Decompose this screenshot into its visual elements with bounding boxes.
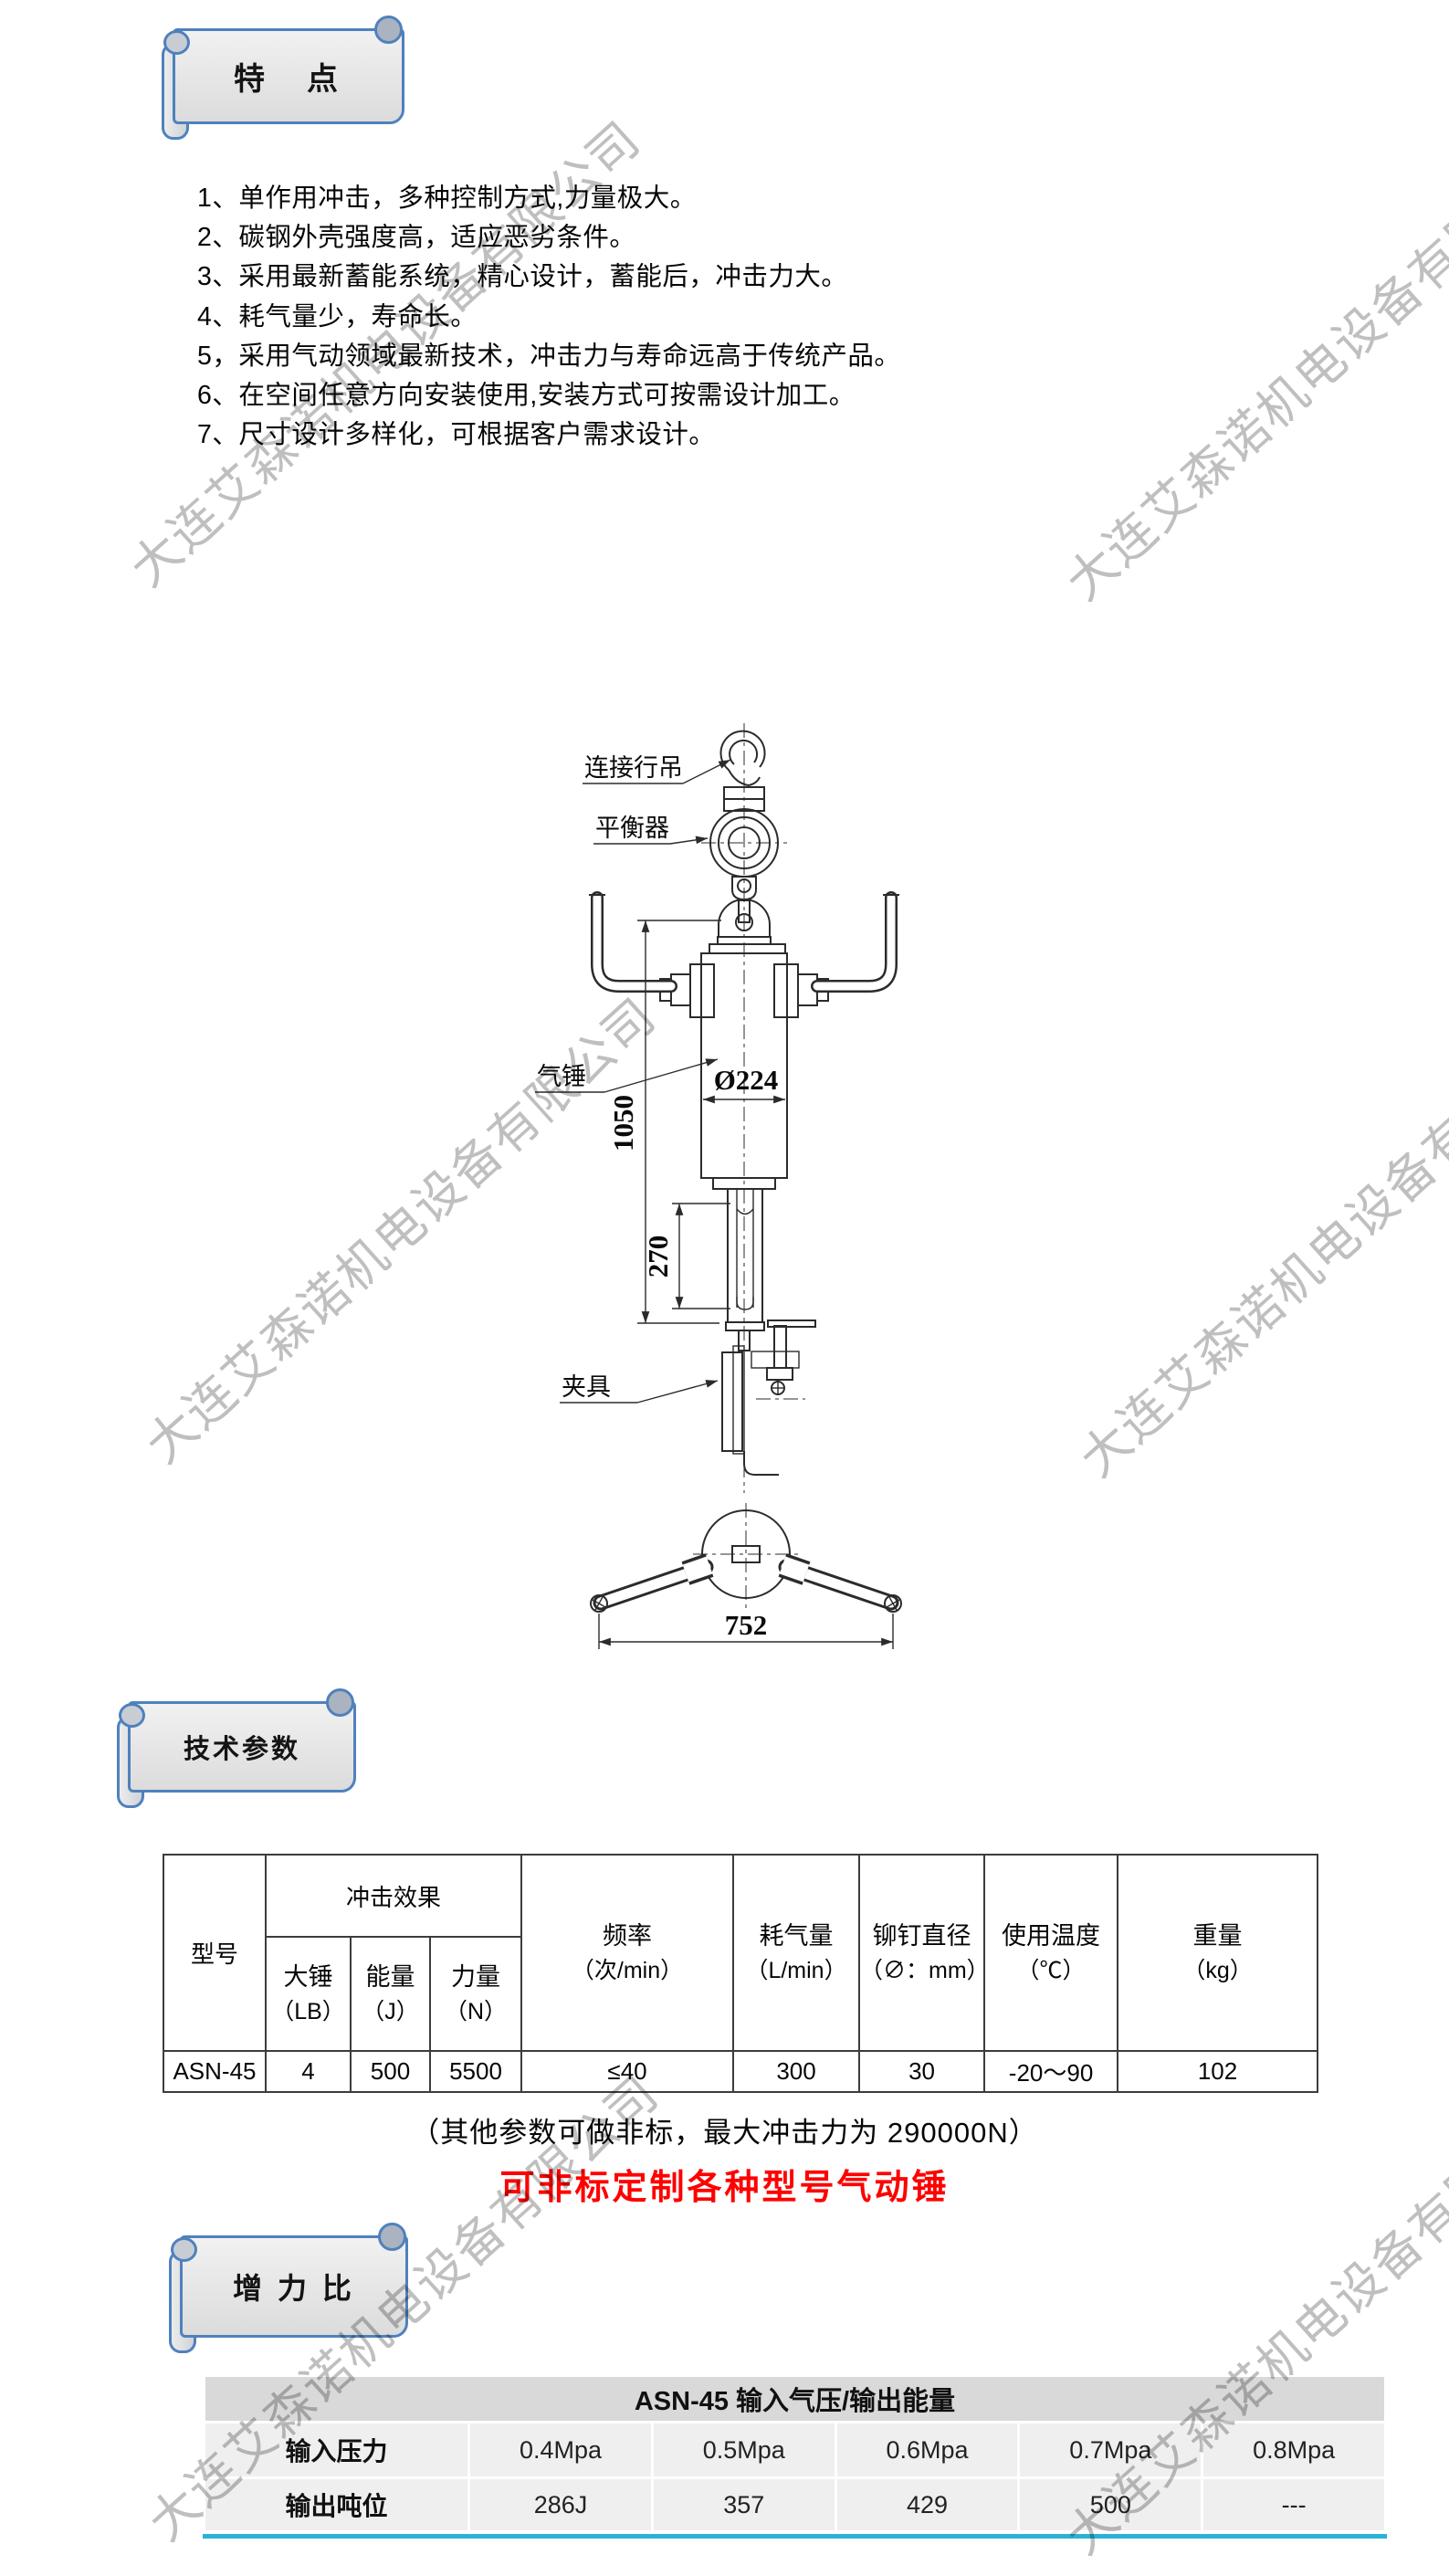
header-unit: （LB） — [267, 1994, 350, 2029]
cell-force: 5500 — [430, 2051, 521, 2092]
pressure-value: 0.6Mpa — [837, 2424, 1018, 2476]
banner-features: 特 点 — [162, 16, 404, 124]
header-unit: （℃） — [985, 1953, 1117, 1988]
col-rivet-header: 铆钉直径 （∅：mm） — [859, 1855, 984, 2051]
header-unit: （N） — [431, 1994, 520, 2029]
cell-hammer: 4 — [266, 2051, 351, 2092]
note-custom-red: 可非标定制各种型号气动锤 — [0, 2159, 1449, 2209]
scroll-curl-icon — [374, 16, 403, 44]
cell-temperature: -20～90 — [984, 2051, 1118, 2092]
header-name: 铆钉直径 — [860, 1919, 983, 1953]
cell-weight: 102 — [1118, 2051, 1318, 2092]
watermark-text: 大连艾森诺机电设备有限公司 — [1061, 992, 1449, 1490]
banner-face: 技术参数 — [128, 1701, 356, 1793]
input-pressure-label: 输入压力 — [205, 2424, 467, 2476]
svg-text:平衡器: 平衡器 — [595, 815, 669, 842]
header-name: 频率 — [522, 1919, 732, 1953]
hook-drawing — [721, 731, 765, 811]
banner-tech-params-label: 技术参数 — [184, 1728, 300, 1766]
cell-frequency: ≤40 — [521, 2051, 733, 2092]
bottom-view-drawing — [591, 1503, 901, 1612]
feature-item: 6、在空间任意方向安装使用,安装方式可按需设计加工。 — [197, 376, 1037, 415]
scroll-curl-icon — [171, 2237, 197, 2262]
pressure-value: 0.4Mpa — [470, 2424, 651, 2476]
pneumatic-hammer-diagram: 752 1050 270 Ø224 连接行吊 平衡器 — [484, 721, 995, 1662]
col-force-header: 力量 （N） — [430, 1937, 521, 2051]
banner-face: 特 点 — [173, 28, 404, 124]
clamp-drawing — [722, 1320, 815, 1475]
label-hammer: 气锤 — [535, 1059, 718, 1092]
header-unit: （L/min） — [734, 1953, 858, 1988]
svg-text:气锤: 气锤 — [537, 1063, 586, 1090]
input-pressure-row: 输入压力 0.4Mpa 0.5Mpa 0.6Mpa 0.7Mpa 0.8Mpa — [205, 2424, 1384, 2476]
banner-features-label: 特 点 — [234, 54, 343, 99]
svg-text:1050: 1050 — [607, 1095, 639, 1151]
header-name: 使用温度 — [985, 1919, 1117, 1953]
energy-table-section: ASN-45 输入气压/输出能量 输入压力 0.4Mpa 0.5Mpa 0.6M… — [203, 2374, 1387, 2539]
svg-text:Ø224: Ø224 — [714, 1064, 779, 1096]
header-unit: （次/min） — [522, 1953, 732, 1988]
feature-item: 1、单作用冲击，多种控制方式,力量极大。 — [197, 179, 1037, 218]
output-value: 286J — [470, 2479, 651, 2530]
feature-item: 5，采用气动领域最新技术，冲击力与寿命远高于传统产品。 — [197, 337, 1037, 376]
banner-force-ratio: 增 力 比 — [169, 2223, 408, 2338]
cyan-divider — [203, 2534, 1387, 2539]
header-name: 能量 — [352, 1960, 429, 1994]
header-unit: （kg） — [1118, 1953, 1317, 1988]
col-air-header: 耗气量 （L/min） — [733, 1855, 859, 2051]
col-hammer-header: 大锤 （LB） — [266, 1937, 351, 2051]
page-root: 大连艾森诺机电设备有限公司 大连艾森诺机电设备有限公司 大连艾森诺机电设备有限公… — [0, 0, 1449, 2576]
output-value: 357 — [654, 2479, 835, 2530]
cell-energy: 500 — [351, 2051, 430, 2092]
banner-face: 增 力 比 — [180, 2235, 408, 2338]
header-name: 大锤 — [267, 1960, 350, 1994]
features-list: 1、单作用冲击，多种控制方式,力量极大。 2、碳钢外壳强度高，适应恶劣条件。 3… — [197, 179, 1037, 455]
spec-table-row: ASN-45 4 500 5500 ≤40 300 30 -20～90 102 — [163, 2051, 1318, 2092]
feature-item: 4、耗气量少，寿命长。 — [197, 298, 1037, 337]
label-hook: 连接行吊 — [583, 754, 730, 783]
scroll-curl-icon — [163, 30, 190, 55]
banner-tech-params: 技术参数 — [117, 1688, 356, 1793]
energy-table-title: ASN-45 输入气压/输出能量 — [205, 2377, 1384, 2421]
impact-group-header: 冲击效果 — [266, 1855, 521, 1937]
feature-item: 3、采用最新蓄能系统，精心设计，蓄能后，冲击力大。 — [197, 258, 1037, 297]
label-balancer: 平衡器 — [593, 815, 708, 844]
output-value: --- — [1203, 2479, 1384, 2530]
note-nonstandard: （其他参数可做非标，最大冲击力为 290000N） — [0, 2109, 1449, 2150]
scroll-curl-icon — [326, 1688, 354, 1717]
scroll-curl-icon — [119, 1703, 145, 1728]
output-label: 输出吨位 — [205, 2479, 467, 2530]
header-unit: （∅：mm） — [860, 1953, 983, 1988]
label-clamp: 夹具 — [560, 1373, 718, 1403]
col-frequency-header: 频率 （次/min） — [521, 1855, 733, 2051]
cell-rivet: 30 — [859, 2051, 984, 2092]
scroll-curl-icon — [378, 2223, 406, 2251]
output-value: 429 — [837, 2479, 1018, 2530]
pressure-value: 0.7Mpa — [1020, 2424, 1201, 2476]
spec-table: 型号 冲击效果 频率 （次/min） 耗气量 （L/min） 铆钉直径 （∅：m… — [163, 1854, 1318, 2093]
dim-stroke-270: 270 — [642, 1204, 730, 1309]
cell-air: 300 — [733, 2051, 859, 2092]
svg-text:270: 270 — [642, 1235, 674, 1278]
header-name: 力量 — [431, 1960, 520, 1994]
energy-table: ASN-45 输入气压/输出能量 输入压力 0.4Mpa 0.5Mpa 0.6M… — [203, 2374, 1387, 2533]
svg-text:夹具: 夹具 — [562, 1373, 611, 1401]
pressure-value: 0.8Mpa — [1203, 2424, 1384, 2476]
col-temperature-header: 使用温度 （℃） — [984, 1855, 1118, 2051]
cell-model: ASN-45 — [163, 2051, 266, 2092]
pressure-value: 0.5Mpa — [654, 2424, 835, 2476]
feature-item: 2、碳钢外壳强度高，适应恶劣条件。 — [197, 218, 1037, 258]
header-name: 重量 — [1118, 1919, 1317, 1953]
col-energy-header: 能量 （J） — [351, 1937, 430, 2051]
header-name: 耗气量 — [734, 1919, 858, 1953]
header-unit: （J） — [352, 1994, 429, 2029]
watermark-text: 大连艾森诺机电设备有限公司 — [1047, 115, 1449, 614]
feature-item: 7、尺寸设计多样化，可根据客户需求设计。 — [197, 415, 1037, 455]
svg-text:752: 752 — [725, 1609, 768, 1641]
svg-text:连接行吊: 连接行吊 — [584, 754, 683, 782]
col-weight-header: 重量 （kg） — [1118, 1855, 1318, 2051]
dim-diameter-224: Ø224 — [703, 1064, 785, 1099]
col-model-header: 型号 — [163, 1855, 266, 2051]
dim-width-752: 752 — [599, 1609, 893, 1649]
banner-force-ratio-label: 增 力 比 — [233, 2266, 355, 2308]
output-row: 输出吨位 286J 357 429 500 --- — [205, 2479, 1384, 2530]
output-value: 500 — [1020, 2479, 1201, 2530]
